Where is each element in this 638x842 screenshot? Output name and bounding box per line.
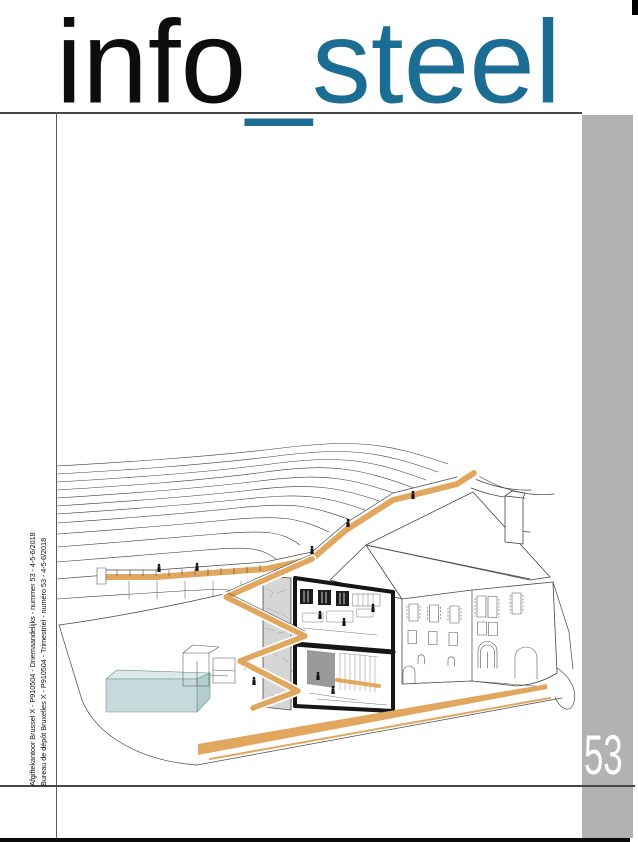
title-info: info <box>56 0 246 128</box>
magazine-title: info_steel <box>56 3 561 121</box>
magazine-cover: info_steel 53 Afgiftekantoor Brussel X -… <box>0 0 638 842</box>
section-cutaway <box>295 578 393 711</box>
issue-number: 53 <box>584 727 623 783</box>
cover-illustration <box>57 113 581 786</box>
imprint-vertical-text: Afgiftekantoor Brussel X - P910504 - Dri… <box>27 536 51 786</box>
imprint-line-fr: Bureau de dépôt Bruxelles X - P910504 - … <box>38 536 49 786</box>
right-gray-band: 53 <box>582 115 633 838</box>
top-right-corner-mark <box>632 0 638 15</box>
rear-annex <box>505 491 525 544</box>
bottom-edge-bar <box>0 838 630 842</box>
title-steel: _steel <box>246 0 561 128</box>
ramp-abutment <box>97 568 106 584</box>
street-facade <box>402 582 575 709</box>
imprint-line-nl: Afgiftekantoor Brussel X - P910504 - Dri… <box>27 536 38 786</box>
water-basin <box>106 670 210 712</box>
